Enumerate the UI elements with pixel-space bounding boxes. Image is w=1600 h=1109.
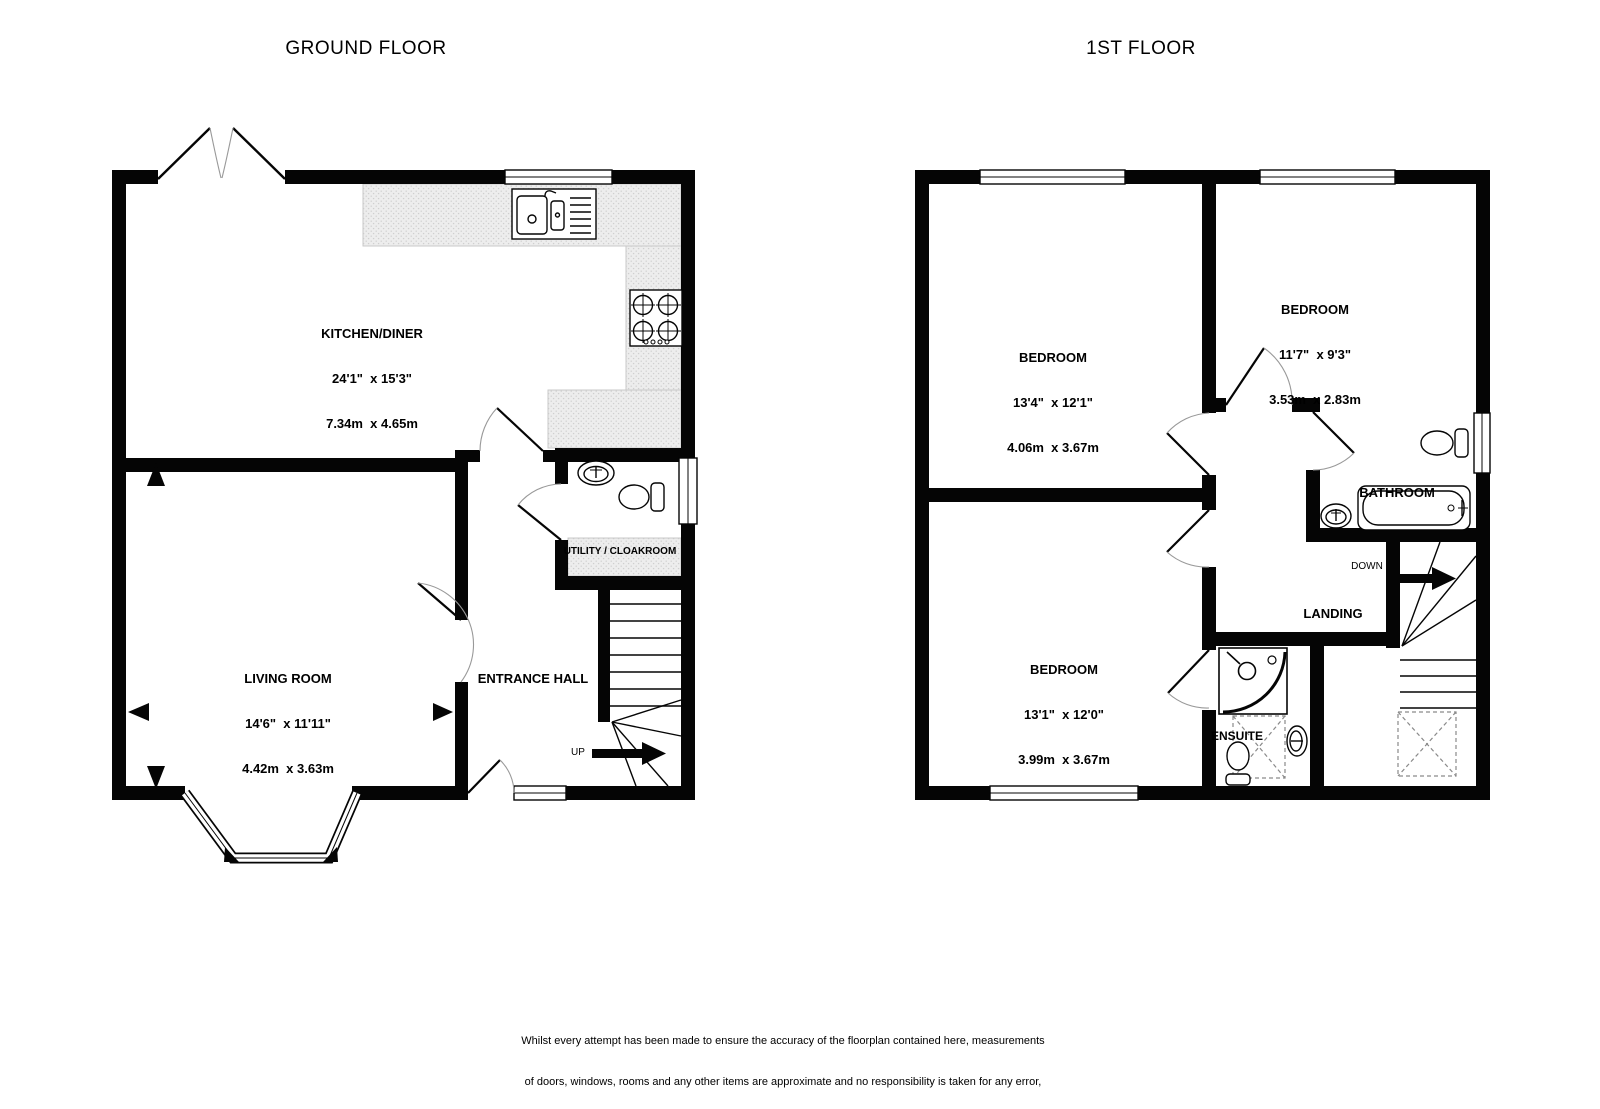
ground-floor-walls — [112, 170, 695, 800]
cloakroom-toilet-icon — [619, 483, 664, 511]
staircase-down — [1390, 542, 1476, 776]
room-label-landing: LANDING — [1303, 576, 1362, 636]
room-dim-metric: 3.99m x 3.67m — [1018, 752, 1110, 767]
room-label-bedroom-1: BEDROOM 13'4" x 12'1" 4.06m x 3.67m — [1007, 320, 1099, 470]
room-name: UTILITY / CLOAKROOM — [564, 544, 677, 559]
front-door — [468, 760, 514, 793]
room-name: KITCHEN/DINER — [321, 326, 423, 341]
utility-door — [518, 484, 561, 540]
ensuite-door — [1168, 650, 1209, 708]
ground-floor-title: GROUND FLOOR — [285, 38, 446, 60]
stairs-up-label: UP — [571, 747, 585, 758]
bedroom3-door — [1167, 510, 1209, 567]
room-label-entrance-hall: ENTRANCE HALL — [478, 641, 589, 701]
room-label-bedroom-3: BEDROOM 13'1" x 12'0" 3.99m x 3.67m — [1018, 632, 1110, 782]
room-dim-imperial: 13'4" x 12'1" — [1007, 395, 1099, 410]
room-dim-metric: 7.34m x 4.65m — [321, 416, 423, 431]
front-window — [514, 786, 566, 800]
storage-hatch-box — [1398, 712, 1456, 776]
kitchen-sink-icon — [512, 189, 596, 239]
room-label-ensuite: ENSUITE — [1211, 699, 1263, 759]
room-dim-imperial: 11'7" x 9'3" — [1269, 347, 1361, 362]
kitchen-window — [505, 170, 612, 184]
floorplan-drawing — [0, 0, 1600, 1109]
kitchen-door — [480, 408, 543, 451]
room-name: LIVING ROOM — [242, 671, 334, 686]
up-arrow-icon — [592, 742, 666, 765]
room-dim-imperial: 24'1" x 15'3" — [321, 371, 423, 386]
bathroom-basin-icon — [1321, 504, 1351, 528]
room-dim-imperial: 14'6" x 11'11" — [242, 716, 334, 731]
first-floor-title: 1ST FLOOR — [1086, 38, 1196, 60]
disclaimer-line: of doors, windows, rooms and any other i… — [518, 1076, 1047, 1090]
room-name: ENSUITE — [1211, 729, 1263, 744]
room-label-bedroom-2: BEDROOM 11'7" x 9'3" 3.53m x 2.83m — [1269, 272, 1361, 422]
room-dim-imperial: 13'1" x 12'0" — [1018, 707, 1110, 722]
room-name: LANDING — [1303, 606, 1362, 621]
bathroom-window — [1474, 413, 1490, 473]
room-label-kitchen-diner: KITCHEN/DINER 24'1" x 15'3" 7.34m x 4.65… — [321, 296, 423, 446]
room-dim-metric: 4.06m x 3.67m — [1007, 440, 1099, 455]
bedroom3-window — [990, 786, 1138, 800]
room-name: BEDROOM — [1269, 302, 1361, 317]
bedroom1-window — [980, 170, 1125, 184]
disclaimer: Whilst every attempt has been made to en… — [518, 1008, 1047, 1109]
floorplan-page: GROUND FLOOR 1ST FLOOR KITCHEN/DINER 24'… — [0, 0, 1600, 1109]
bay-window — [185, 793, 357, 862]
room-label-utility-cloakroom: UTILITY / CLOAKROOM — [564, 514, 677, 574]
room-dim-metric: 3.53m x 2.83m — [1269, 392, 1361, 407]
room-label-bathroom: BATHROOM — [1359, 455, 1435, 515]
french-doors-icon — [158, 128, 285, 179]
bathroom-toilet-icon — [1421, 429, 1468, 457]
room-name: ENTRANCE HALL — [478, 671, 589, 686]
disclaimer-line: Whilst every attempt has been made to en… — [518, 1035, 1047, 1049]
ensuite-basin-icon — [1287, 726, 1307, 756]
room-dim-metric: 4.42m x 3.63m — [242, 761, 334, 776]
room-label-living-room: LIVING ROOM 14'6" x 11'11" 4.42m x 3.63m — [242, 641, 334, 791]
room-name: BEDROOM — [1018, 662, 1110, 677]
cloakroom-basin-icon — [578, 461, 614, 485]
room-name: BATHROOM — [1359, 485, 1435, 500]
stairs-down-label: DOWN — [1351, 561, 1383, 572]
hob-icon — [630, 290, 682, 346]
ground-floor-plan — [112, 128, 697, 862]
room-name: BEDROOM — [1007, 350, 1099, 365]
bedroom2-window — [1260, 170, 1395, 184]
bedroom1-door — [1167, 413, 1209, 475]
utility-window — [679, 458, 697, 524]
